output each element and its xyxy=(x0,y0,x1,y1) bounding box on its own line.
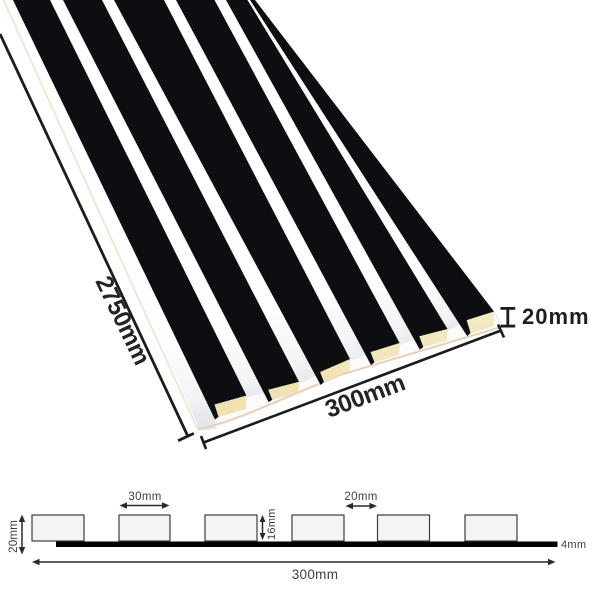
svg-text:20mm: 20mm xyxy=(344,491,377,503)
svg-text:4mm: 4mm xyxy=(561,539,586,551)
svg-text:20mm: 20mm xyxy=(8,520,20,553)
svg-text:16mm: 16mm xyxy=(266,508,278,540)
svg-text:300mm: 300mm xyxy=(292,567,339,582)
svg-text:30mm: 30mm xyxy=(128,491,161,503)
svg-text:20mm: 20mm xyxy=(522,304,590,329)
